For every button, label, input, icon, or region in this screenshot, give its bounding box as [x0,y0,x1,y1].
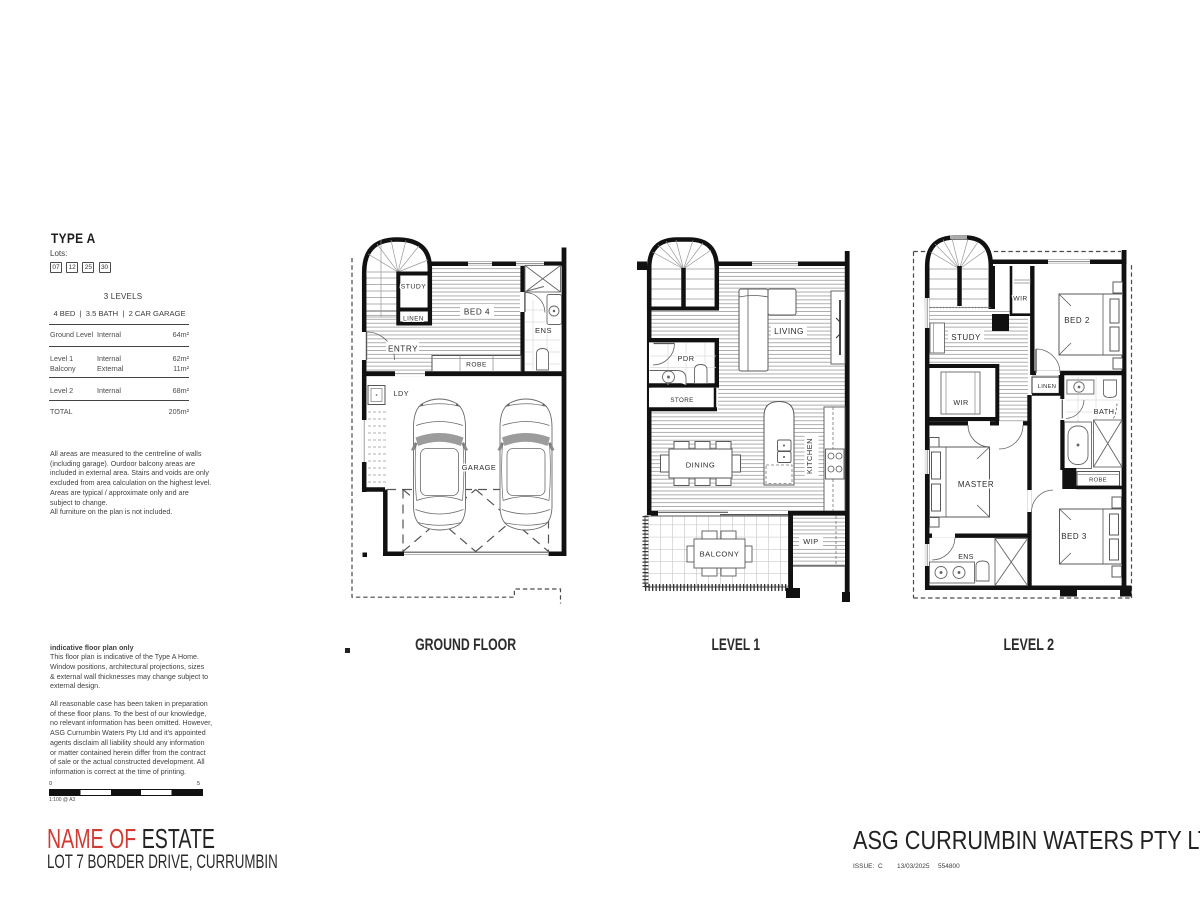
svg-text:BED 4: BED 4 [464,308,490,317]
svg-text:ENTRY: ENTRY [388,345,418,354]
svg-text:BATH: BATH [1094,407,1115,416]
svg-text:ENS: ENS [535,326,552,335]
svg-text:GROUND FLOOR: GROUND FLOOR [415,636,516,654]
svg-text:STUDY: STUDY [951,333,981,342]
svg-text:PDR: PDR [677,354,694,363]
svg-text:GARAGE: GARAGE [462,463,497,472]
svg-text:LIVING: LIVING [774,327,804,336]
svg-text:BED 3: BED 3 [1061,532,1087,541]
svg-text:ENS: ENS [958,554,974,561]
svg-text:WIR: WIR [953,398,968,407]
svg-text:WIR: WIR [1013,296,1027,303]
svg-text:LEVEL 2: LEVEL 2 [1004,636,1055,654]
svg-text:ROBE: ROBE [1089,478,1107,484]
svg-text:MASTER: MASTER [958,480,994,489]
svg-text:DINING: DINING [686,461,716,470]
svg-text:LINEN: LINEN [403,316,424,323]
svg-text:LEVEL 1: LEVEL 1 [712,636,761,654]
svg-text:STORE: STORE [670,397,693,404]
svg-text:WIP: WIP [803,537,818,546]
svg-text:KITCHEN: KITCHEN [805,438,814,474]
svg-text:LDY: LDY [394,389,409,398]
svg-text:BED 2: BED 2 [1064,316,1090,325]
svg-text:LINEN: LINEN [1038,384,1057,390]
svg-text:BALCONY: BALCONY [700,550,740,559]
svg-text:STUDY: STUDY [401,284,427,291]
svg-text:ROBE: ROBE [466,362,487,369]
